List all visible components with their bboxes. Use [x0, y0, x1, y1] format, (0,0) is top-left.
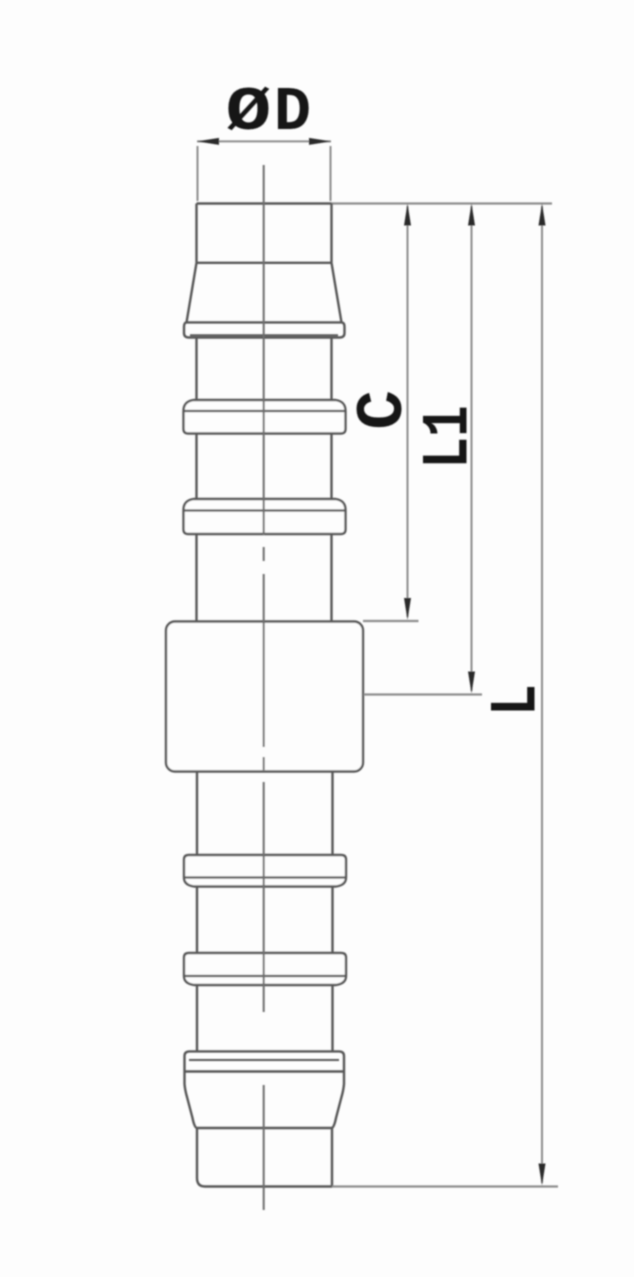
svg-text:Ø: Ø — [226, 77, 271, 148]
svg-text:D: D — [274, 77, 311, 148]
svg-text:L1: L1 — [411, 405, 486, 468]
svg-text:L: L — [479, 684, 554, 716]
svg-text:C: C — [346, 390, 421, 430]
